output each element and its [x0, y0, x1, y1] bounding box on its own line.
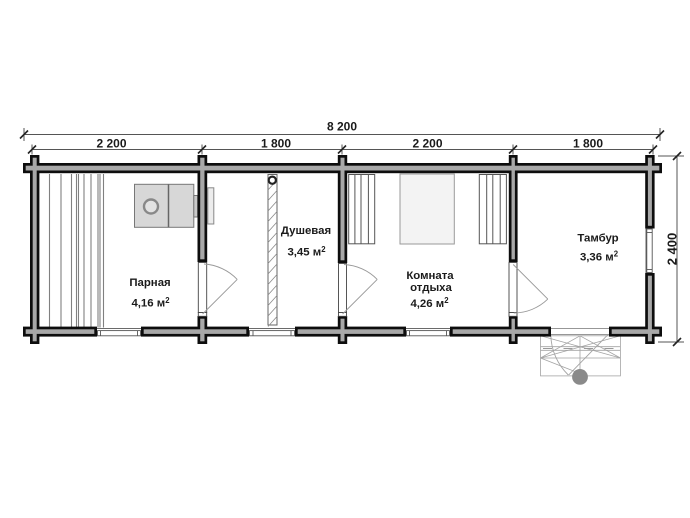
svg-text:4,26 м2: 4,26 м2: [410, 296, 449, 310]
svg-text:8 200: 8 200: [327, 120, 357, 134]
svg-text:1 800: 1 800: [261, 137, 291, 151]
svg-text:3,36 м2: 3,36 м2: [580, 250, 619, 264]
svg-text:Комната: Комната: [406, 270, 454, 282]
svg-text:отдыха: отдыха: [410, 282, 452, 294]
svg-text:Тамбур: Тамбур: [577, 232, 618, 244]
svg-text:2 200: 2 200: [96, 137, 126, 151]
svg-text:Душевая: Душевая: [281, 225, 331, 237]
svg-text:1 800: 1 800: [573, 137, 603, 151]
svg-text:2 200: 2 200: [412, 137, 442, 151]
svg-text:3,45 м2: 3,45 м2: [287, 245, 326, 259]
svg-text:4,16 м2: 4,16 м2: [131, 296, 170, 310]
svg-text:Парная: Парная: [129, 277, 170, 289]
svg-text:2 400: 2 400: [665, 233, 680, 266]
